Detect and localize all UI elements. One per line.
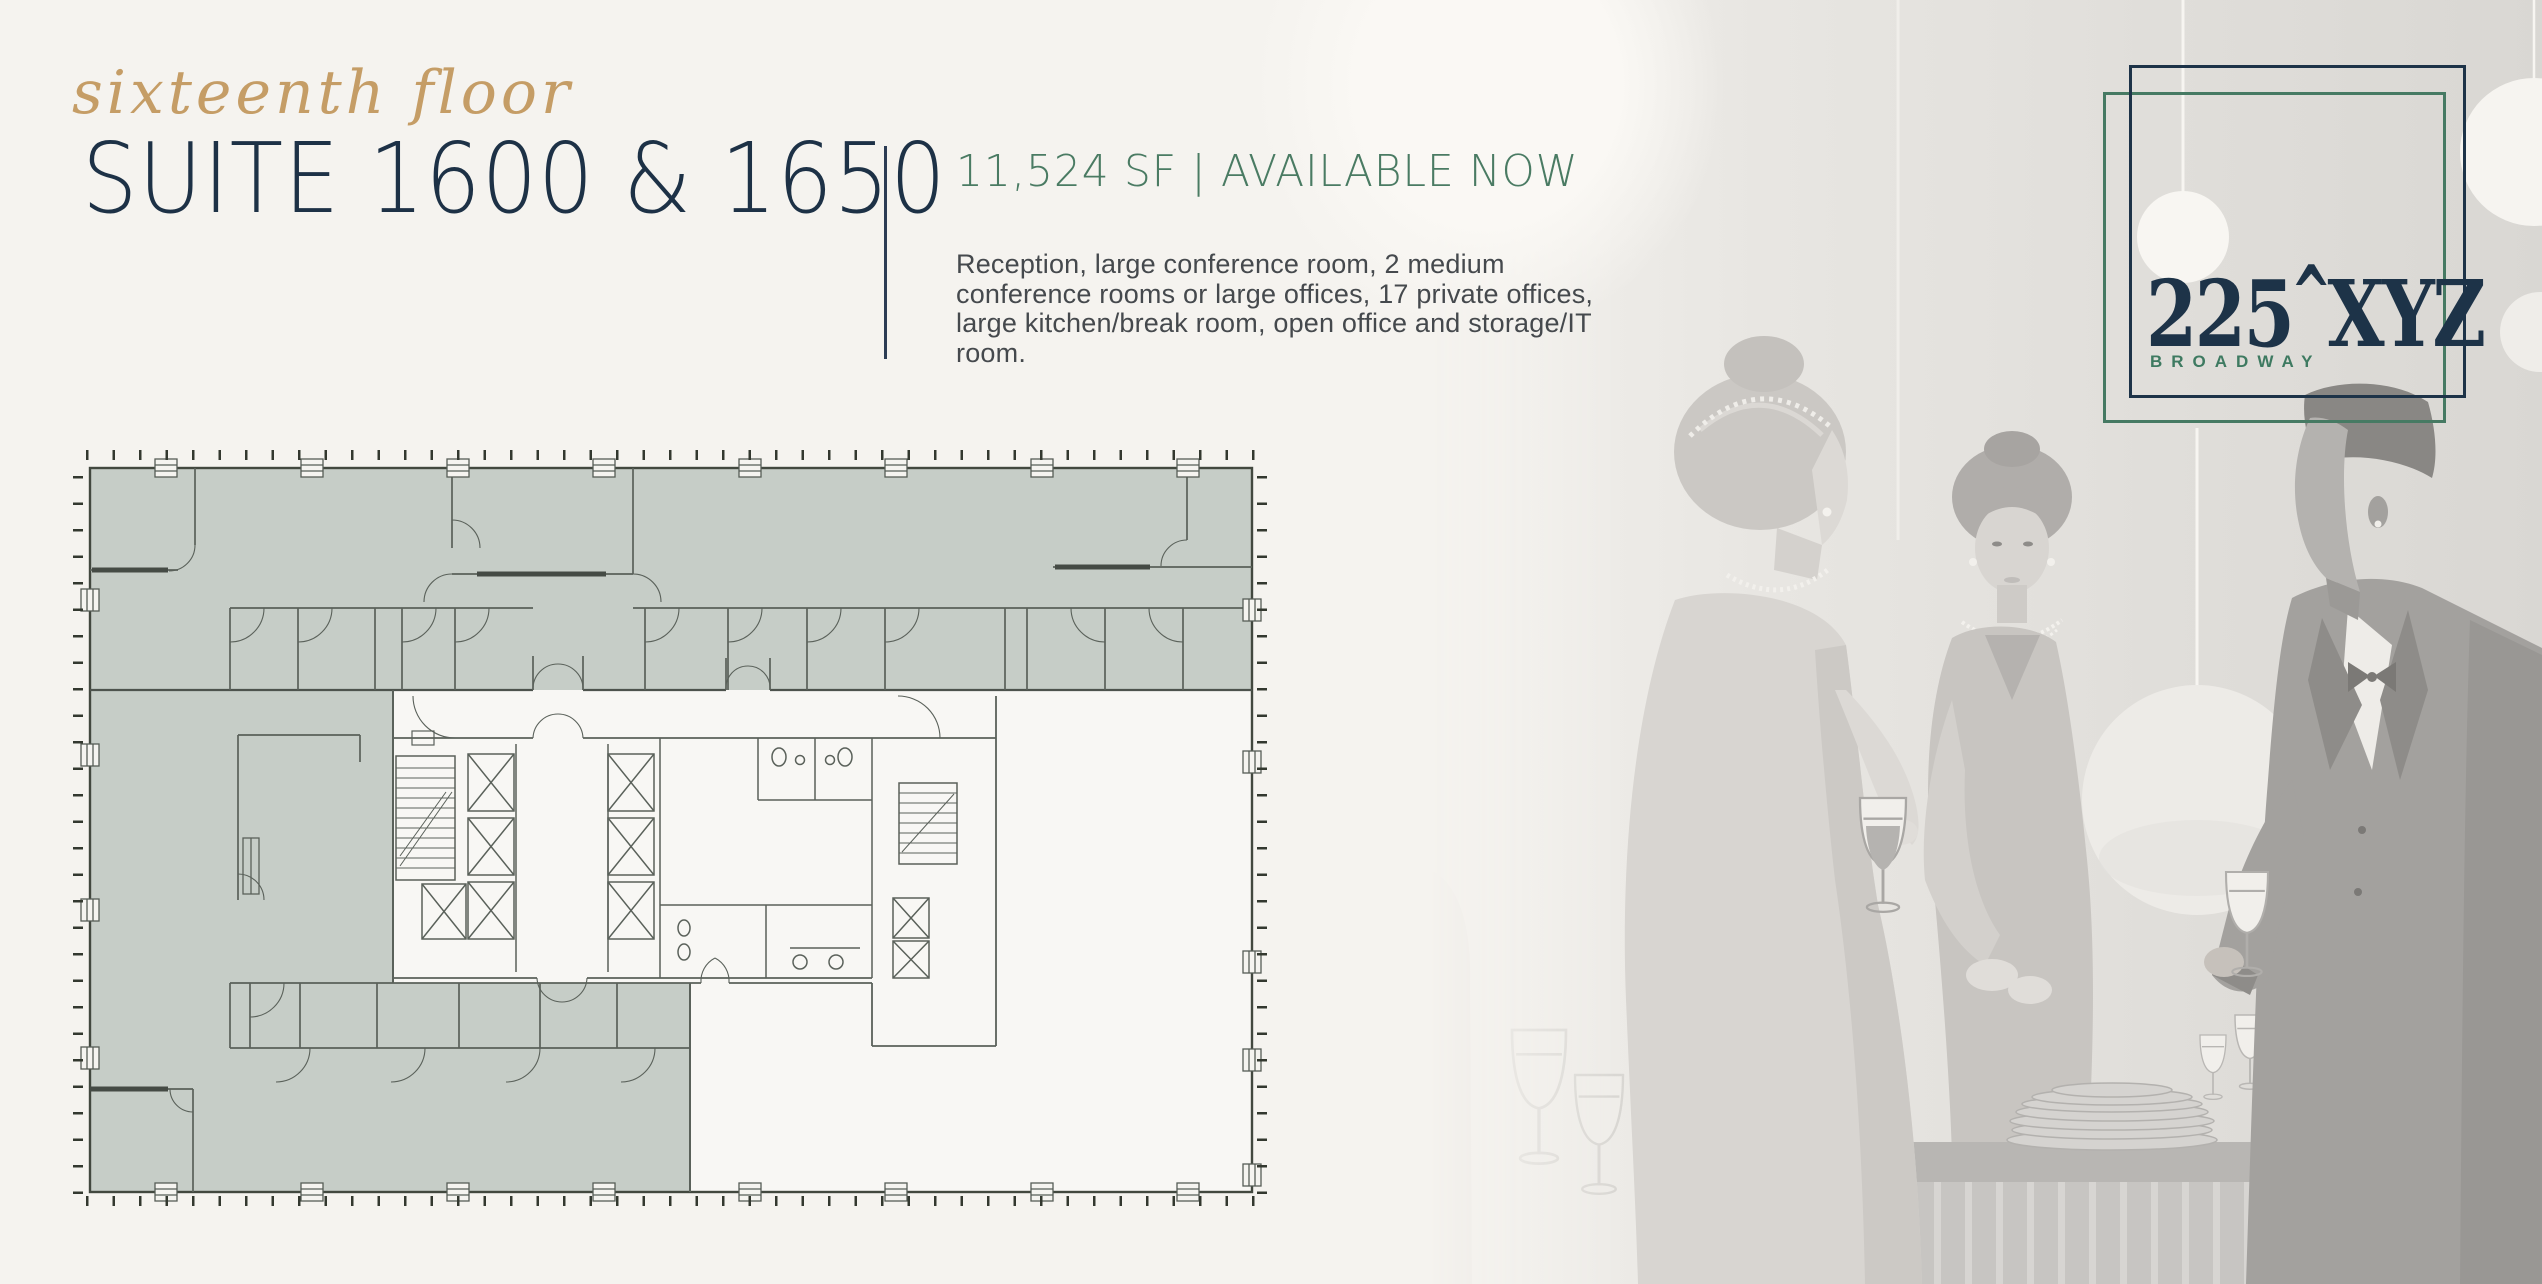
suite-description: Reception, large conference room, 2 medi… xyxy=(956,250,1646,368)
flyer-page: sixteenth floor SUITE 1600 & 1650 11,524… xyxy=(0,0,2542,1284)
availability-text: 11,524 SF | AVAILABLE NOW xyxy=(956,148,1578,196)
vertical-divider xyxy=(884,146,887,359)
plan-ruler-ticks-right xyxy=(1257,462,1267,1194)
logo-wordmark: 225^XYZ xyxy=(2146,268,2484,360)
plan-ruler-ticks-bottom xyxy=(86,1196,1256,1206)
plan-ruler-ticks-top xyxy=(86,450,1256,460)
page-title: SUITE 1600 & 1650 xyxy=(82,130,947,227)
floor-plan xyxy=(70,446,1270,1208)
floor-eyebrow: sixteenth floor xyxy=(72,58,574,128)
logo-suffix: XYZ xyxy=(2328,260,2484,368)
plan-ruler-ticks-left xyxy=(73,462,83,1194)
logo-caret-icon: ^ xyxy=(2291,257,2329,333)
logo-subtitle: BROADWAY xyxy=(2150,352,2322,372)
floor-plan-svg xyxy=(70,446,1270,1208)
